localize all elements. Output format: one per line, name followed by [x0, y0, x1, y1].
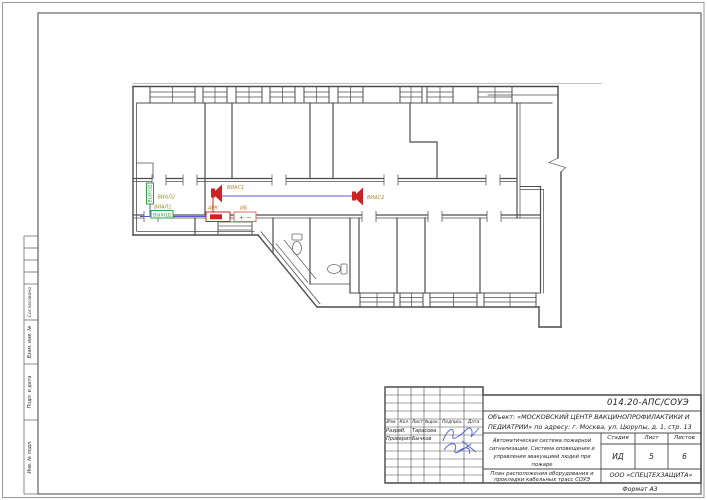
sheet-number: 5 [635, 444, 668, 469]
name-checked: Бычков [412, 435, 462, 443]
device-label: АРК [207, 206, 218, 212]
device-sounder-vias2: ВИАС2 [352, 188, 384, 206]
col-kol: Кол. [398, 419, 411, 427]
corridor-walls [133, 179, 541, 219]
document-code: 014.20-АПС/СОУЭ [483, 396, 689, 411]
device-exit-sign-vial2: ВЫХОД ВИАЛ2 [147, 183, 176, 204]
strip-label-inv-podl: Инв. № подл. [25, 420, 37, 494]
col-list: Лист [411, 419, 424, 427]
role-checked: Проверил [386, 435, 412, 443]
col-izm: Изм. [385, 419, 398, 427]
exit-sign-text: ВЫХОД [148, 184, 153, 203]
break-symbol [549, 158, 566, 172]
col-podpis: Подпись [440, 419, 464, 427]
stairs [218, 218, 316, 286]
strip-label-approved: Согласовано [25, 284, 37, 320]
stage-value: ИД [601, 444, 635, 469]
strip-label-podp-data: Подп. и дата [25, 364, 37, 420]
col-ndok: №док. [424, 419, 440, 427]
exit-sign-text: ВЫХОД [153, 213, 172, 218]
device-power-supply-ib: + − ИБ [234, 206, 256, 222]
device-label: ВИАЛ2 [158, 195, 176, 201]
sheets-label: Листов [668, 433, 701, 444]
device-label: ИБ [240, 206, 248, 212]
col-data: Дата [464, 419, 483, 427]
floor-plan-walls [133, 84, 601, 328]
sheet-title: План расположения оборудования и проклад… [485, 471, 599, 484]
drawing-sheet: ВЫХОД ВИАЛ2 ВЫХОД ВИАЛ1 ВИАС1 ВИАС2 АРК … [0, 0, 707, 500]
name-developed: Тарасова [412, 427, 462, 435]
power-supply-polarity: + − [239, 215, 251, 222]
sheet-label: Лист [635, 433, 668, 444]
role-developed: Разраб. [386, 427, 412, 435]
device-label: ВИАЛ1 [154, 205, 172, 211]
device-junction-box-ark: АРК [206, 206, 230, 222]
toilet-fixtures [292, 234, 347, 274]
company-name: ООО «СПЕЦТЕХЗАЩИТА» [601, 469, 701, 483]
device-label: ВИАС2 [367, 195, 384, 201]
strip-label-vzam-inv: Взам. инв. № [25, 320, 37, 364]
object-description: Объект: «МОСКОВСКИЙ ЦЕНТР ВАКЦИНОПРОФИЛА… [488, 413, 696, 433]
stage-label: Стадия [601, 433, 635, 444]
device-label: ВИАС1 [227, 185, 244, 191]
system-description: Автоматическая система пожарной сигнализ… [485, 437, 599, 468]
sheets-total: 6 [668, 444, 701, 469]
device-exit-sign-vial1: ВЫХОД ВИАЛ1 [151, 205, 173, 219]
format-label: Формат А3 [585, 486, 695, 494]
